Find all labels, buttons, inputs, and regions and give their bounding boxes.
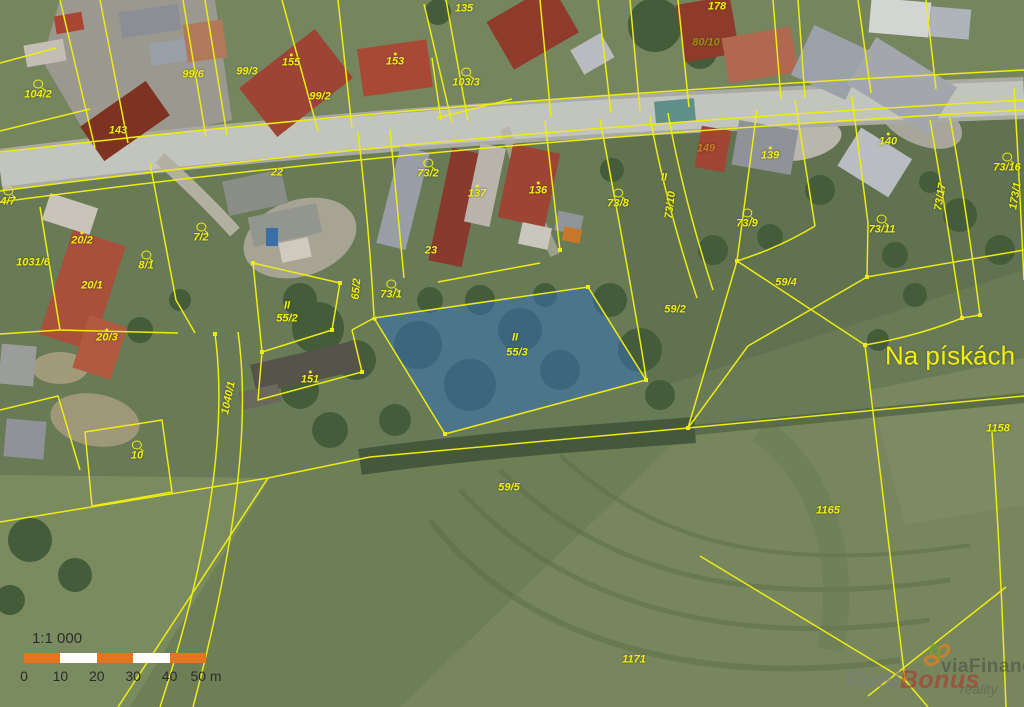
scale-segment (97, 653, 133, 663)
scale-bar: 1:1 000 01020304050 m (24, 630, 254, 684)
scale-tick: 10 (53, 668, 69, 684)
scale-segment (170, 653, 206, 663)
scale-tick-labels: 01020304050 m (24, 668, 206, 684)
scale-tick: 30 (125, 668, 141, 684)
scale-segment (60, 653, 96, 663)
scale-tick: 0 (20, 668, 28, 684)
aerial-photo-layer (0, 0, 1024, 707)
scale-tick: 20 (89, 668, 105, 684)
scale-ratio: 1:1 000 (32, 630, 254, 647)
scale-segment (133, 653, 169, 663)
place-name-label: Na pískách (885, 341, 1015, 372)
scale-tick: 40 (162, 668, 178, 684)
cadastral-map: 104/214399/699/315599/2153103/313517880/… (0, 0, 1024, 707)
scale-segments (24, 653, 206, 663)
scale-segment (24, 653, 60, 663)
scale-tick: 50 m (190, 668, 221, 684)
